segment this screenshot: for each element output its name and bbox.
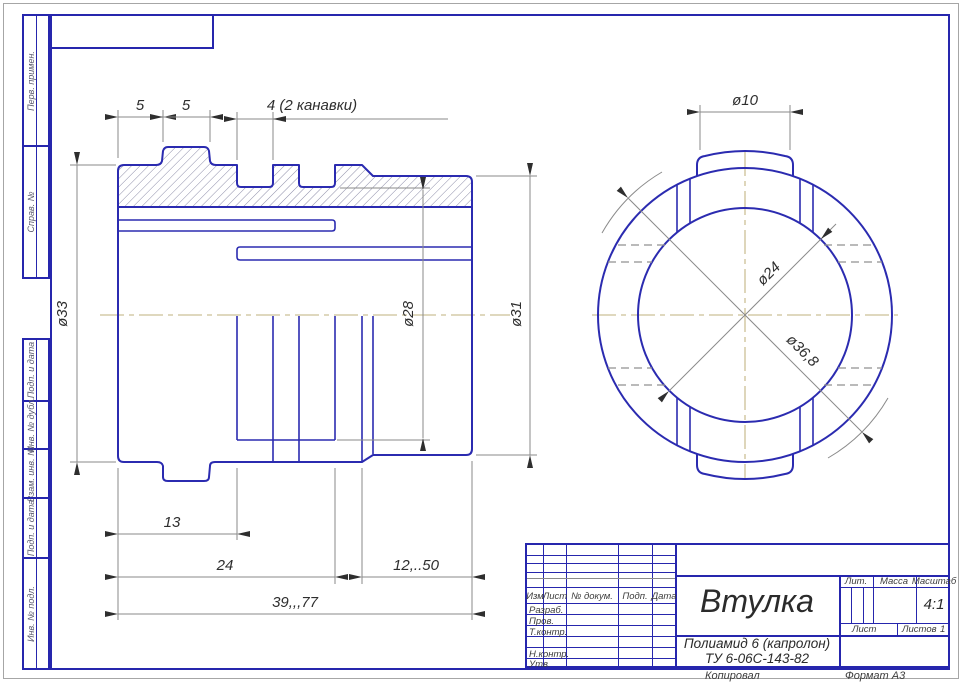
- row-prov: Пров.: [529, 616, 554, 627]
- grid-line: [527, 555, 675, 556]
- grid-line: [897, 623, 898, 635]
- dim-5a: 5: [136, 97, 145, 114]
- dim-grooves: 4 (2 канавки): [267, 97, 357, 114]
- grid-line: [527, 563, 675, 564]
- grid-line: [839, 587, 948, 588]
- row-utv: Утв.: [529, 659, 551, 670]
- dim-d31: ø31: [508, 301, 525, 327]
- scale-value: 4:1: [924, 596, 945, 613]
- copied-label: Копировал: [705, 670, 760, 682]
- col-podp: Подп.: [622, 591, 647, 602]
- dim-d368: ø36,8: [783, 331, 823, 371]
- grid-line: [839, 575, 841, 666]
- dim-d28: ø28: [400, 300, 417, 327]
- col-izm: Изм: [526, 591, 544, 602]
- mass-label: Масса: [880, 576, 908, 587]
- sheets-value: 1: [940, 624, 945, 635]
- format-label: Формат А3: [845, 670, 905, 682]
- material-line1: Полиамид 6 (капролон): [684, 636, 830, 651]
- grid-line: [527, 647, 675, 648]
- hatched-wall: [118, 147, 472, 207]
- section-view: [118, 147, 472, 481]
- dim-d24c: ø24: [754, 259, 784, 289]
- lit-label: Лит.: [845, 576, 867, 587]
- grid-line: [527, 572, 675, 573]
- dim-24: 24: [216, 557, 234, 574]
- scale-label: Масштаб: [912, 576, 956, 587]
- lit-subline: [851, 587, 852, 623]
- dim-3977: 39,,,77: [272, 594, 319, 611]
- dim-5b: 5: [182, 97, 191, 114]
- row-tkontr: Т.контр.: [529, 627, 567, 638]
- col-list: Лист: [543, 591, 567, 602]
- grid-line: [675, 545, 677, 666]
- grid-line: [873, 575, 874, 623]
- part-name: Втулка: [700, 583, 814, 620]
- sheet-label: Лист: [852, 624, 876, 635]
- grid-line-gray: [527, 578, 675, 579]
- title-block: Изм Лист № докум. Подп. Дата Разраб. Про…: [525, 543, 950, 668]
- col-data: Дата: [651, 591, 676, 602]
- dim-d10: ø10: [732, 92, 759, 109]
- dim-1250: 12,..50: [393, 557, 440, 574]
- col-ndokum: № докум.: [571, 591, 613, 602]
- dim-d33: ø33: [54, 300, 71, 327]
- grid-line: [527, 587, 675, 588]
- internal-slits: [118, 220, 472, 260]
- lit-subline: [863, 587, 864, 623]
- row-razrab: Разраб.: [529, 605, 563, 616]
- material-line2: ТУ 6-06С-143-82: [705, 651, 809, 666]
- groove-edges-lower-view: [237, 316, 373, 461]
- dim-13: 13: [164, 514, 181, 531]
- sheets-label: Листов: [902, 624, 937, 635]
- drawing-sheet: Перв. примен. Справ. № Подп. и дата Инв.…: [0, 0, 964, 683]
- grid-line: [527, 603, 675, 604]
